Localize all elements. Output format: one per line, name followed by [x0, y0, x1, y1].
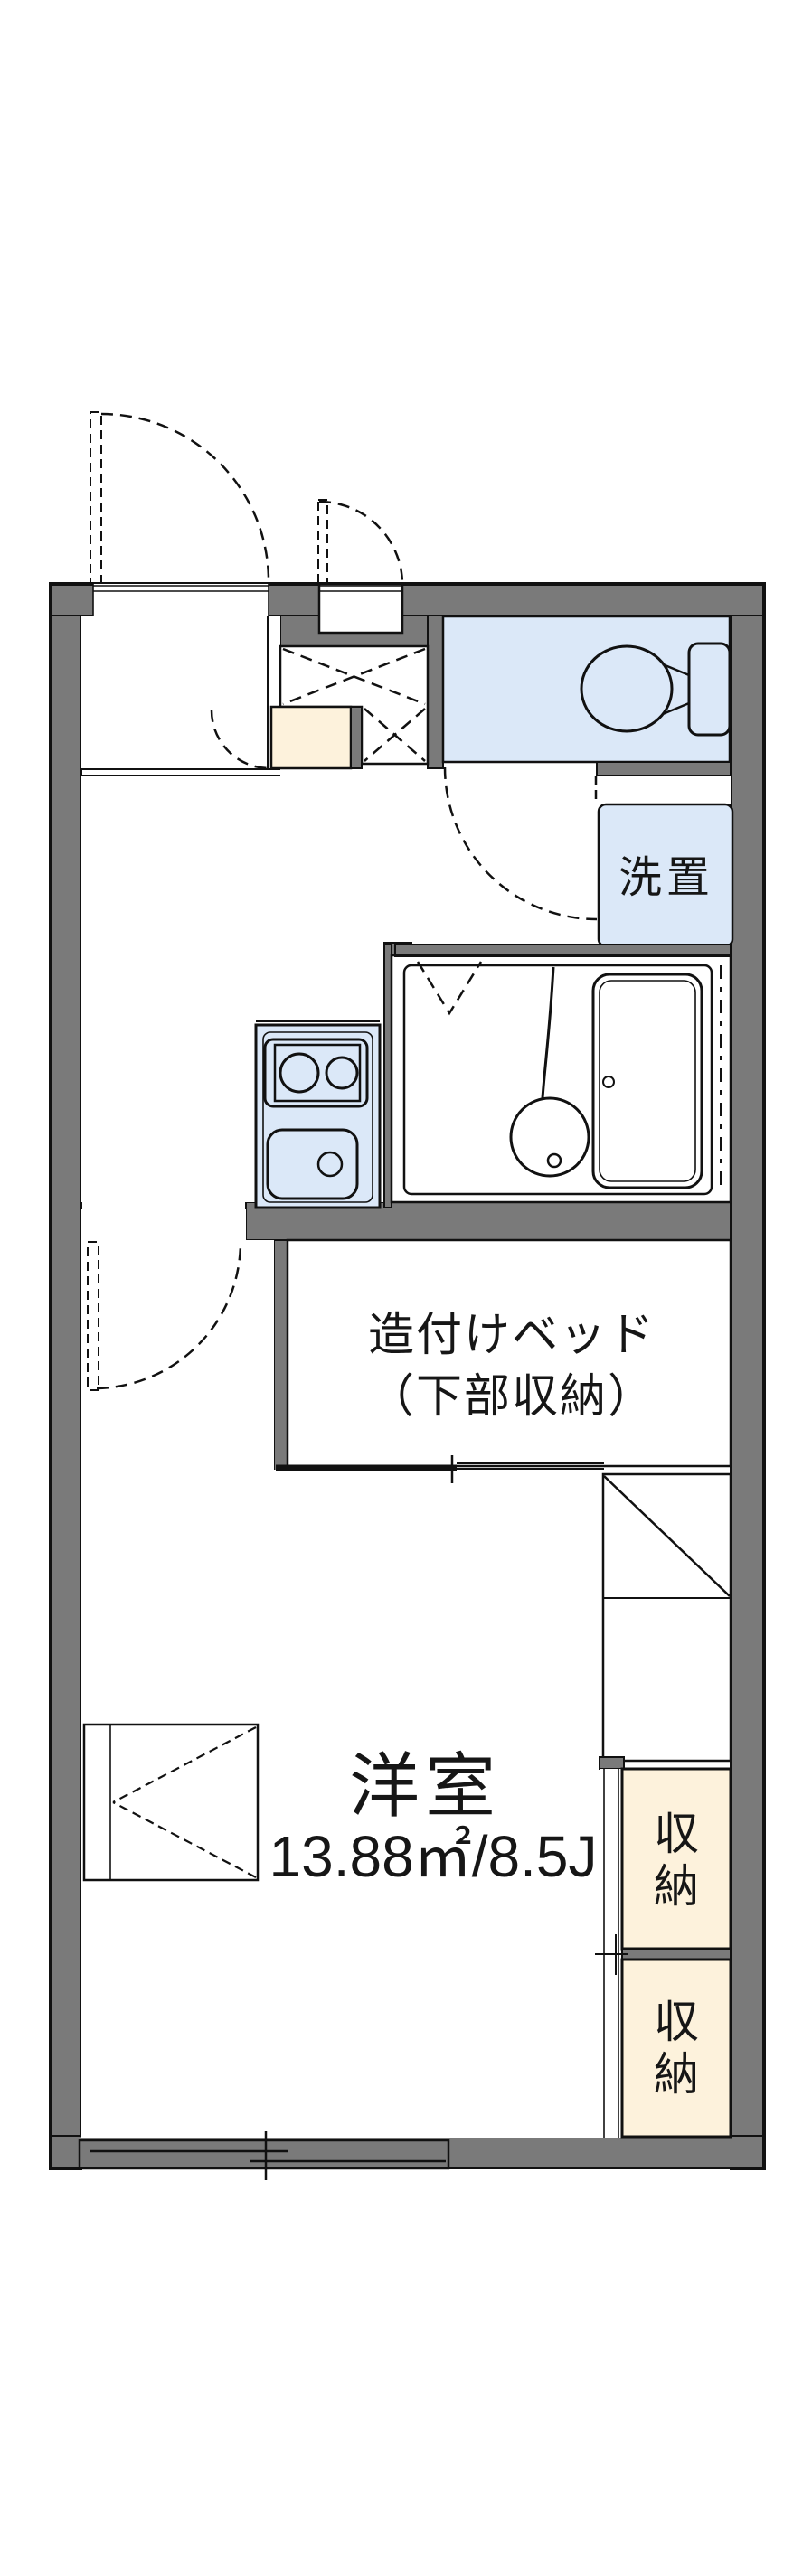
bathroom: [392, 955, 731, 1202]
entrance-hall-floor: [81, 616, 280, 769]
kitchen-counter: [256, 1021, 380, 1208]
storage-divider: [622, 1949, 731, 1960]
bathtub-icon: [593, 974, 702, 1188]
toilet-room: [443, 616, 730, 762]
floorplan-drawing: 洗置: [0, 0, 812, 2576]
washing-machine-space: 洗置: [599, 804, 732, 946]
living-room-area: 13.88㎡/8.5J: [269, 1824, 598, 1889]
laundry-label: 洗置: [618, 854, 714, 902]
laundry-front-floor: [597, 776, 731, 804]
meter-box-door-swing: [318, 500, 402, 585]
built-in-bed: 造付けベッド （下部収納）: [276, 1240, 731, 1483]
shoe-cabinet: [271, 707, 351, 768]
wall-bed-left: [274, 1240, 288, 1471]
bed-label-line1: 造付けベッド: [368, 1309, 656, 1360]
bath-door-symbol: [418, 962, 481, 1013]
bed-label-line2: （下部収納）: [368, 1370, 656, 1422]
wall-step-storage: [600, 1757, 624, 1769]
wall-under-toilet: [597, 762, 731, 776]
wall-beside-shoebox: [351, 707, 362, 768]
floorplan-page: 洗置: [0, 0, 812, 2576]
main-room-floor-b: [81, 1470, 600, 2138]
front-door-opening: [93, 584, 269, 616]
storage-closets: 収納 収納: [595, 1769, 731, 2138]
door-opening-floor: [81, 1209, 246, 1240]
wall-left: [50, 583, 81, 2169]
storage-lower: [622, 1960, 731, 2137]
wall-entry-toilet: [428, 616, 443, 768]
front-door-swing: [90, 412, 269, 583]
refrigerator-space: [600, 1474, 731, 1769]
bath-front-floor: [268, 776, 599, 945]
living-room-name: 洋室: [349, 1746, 501, 1826]
wall-right: [731, 583, 765, 2169]
